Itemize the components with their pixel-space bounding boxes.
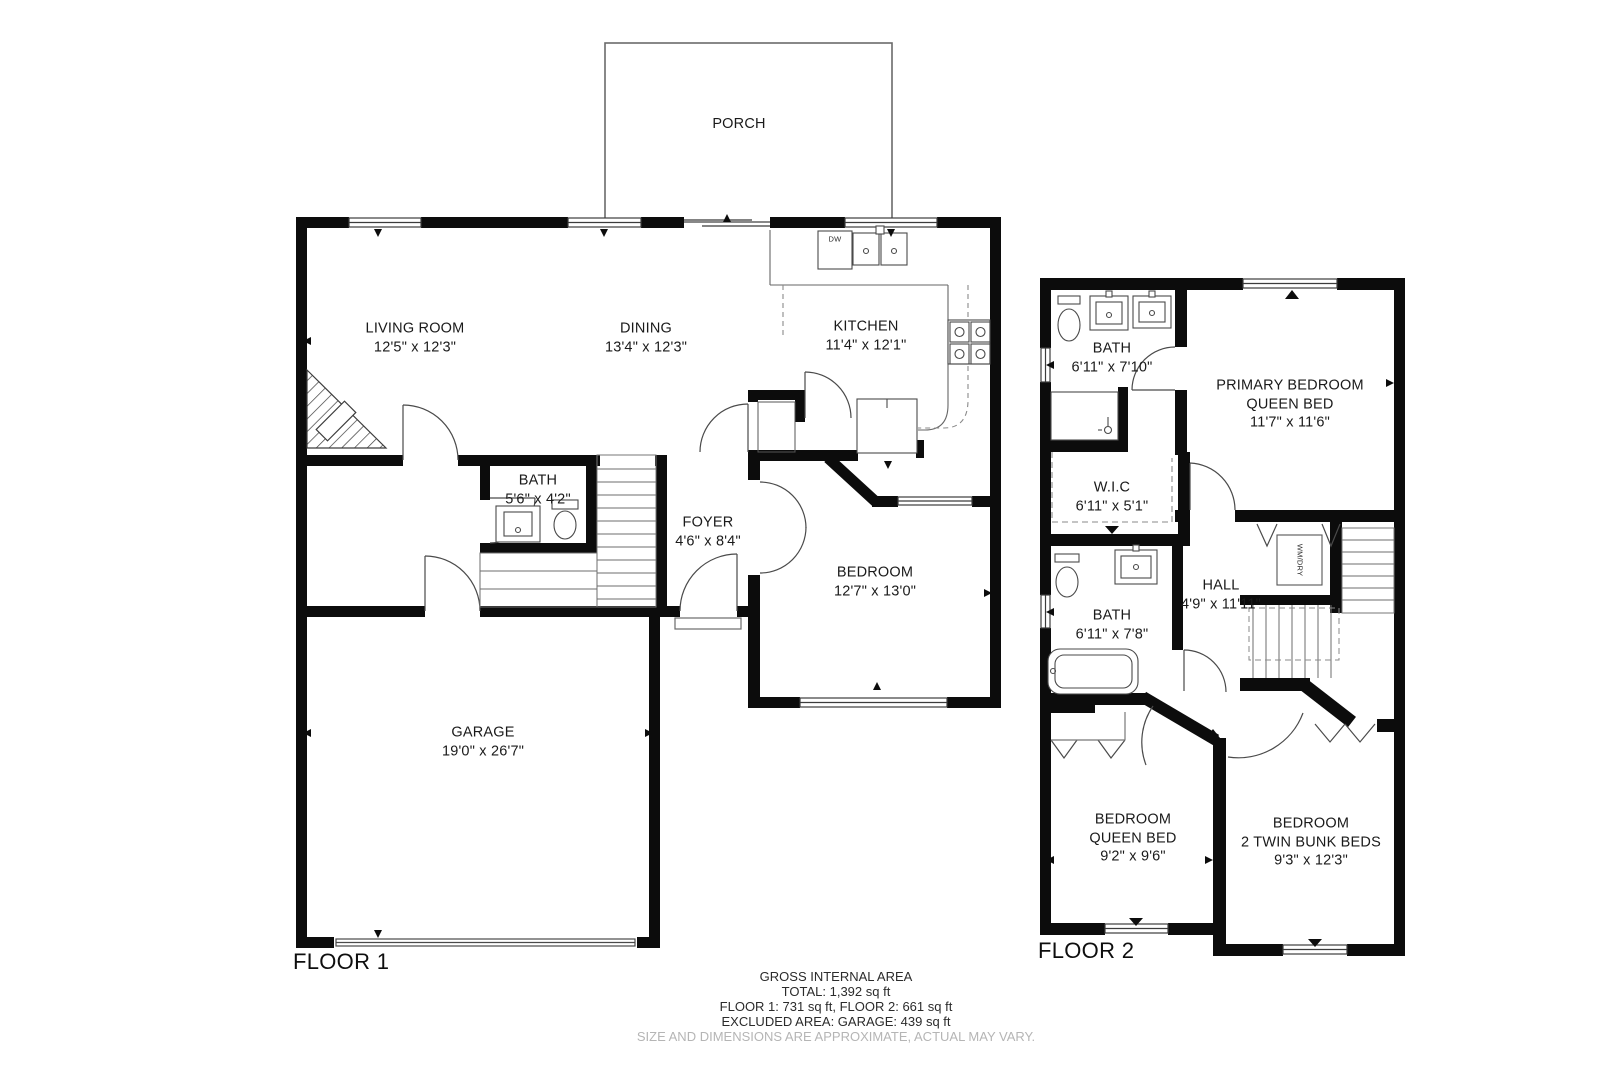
room-label-hall: HALL 4'9" x 11'11" [1181, 577, 1261, 614]
room-label-bedroom1: BEDROOM 12'7" x 13'0" [834, 564, 916, 601]
area-summary: GROSS INTERNAL AREA TOTAL: 1,392 sq ft F… [637, 970, 1035, 1045]
room-label-wic: W.I.C 6'11" x 5'1" [1076, 479, 1149, 516]
room-label-porch: PORCH [712, 115, 765, 134]
area-summary-heading: GROSS INTERNAL AREA [637, 970, 1035, 985]
floor1-tag: FLOOR 1 [293, 949, 389, 975]
room-label-kitchen: KITCHEN 11'4" x 12'1" [825, 318, 906, 355]
room-label-garage: GARAGE 19'0" x 26'7" [442, 724, 524, 761]
room-label-dining: DINING 13'4" x 12'3" [605, 320, 687, 357]
room-label-bath1: BATH 5'6" x 4'2" [505, 472, 571, 509]
washer-dryer-label: WM/DRY [1296, 544, 1305, 576]
room-label-living: LIVING ROOM 12'5" x 12'3" [366, 320, 465, 357]
dishwasher-label: DW [829, 235, 842, 244]
floor-plan-drawing [0, 0, 1599, 1066]
room-label-bath-top: BATH 6'11" x 7'10" [1071, 340, 1152, 377]
area-summary-total: TOTAL: 1,392 sq ft [637, 985, 1035, 1000]
area-summary-disclaimer: SIZE AND DIMENSIONS ARE APPROXIMATE, ACT… [637, 1030, 1035, 1045]
room-label-primary: PRIMARY BEDROOM QUEEN BED 11'7" x 11'6" [1216, 376, 1364, 432]
room-label-foyer: FOYER 4'6" x 8'4" [675, 514, 741, 551]
floor-plan: PORCH LIVING ROOM 12'5" x 12'3" DINING 1… [0, 0, 1599, 1066]
floor2-tag: FLOOR 2 [1038, 938, 1134, 964]
fireplace [307, 370, 386, 448]
room-label-bedroom-queen: BEDROOM QUEEN BED 9'2" x 9'6" [1089, 810, 1176, 866]
area-summary-excluded: EXCLUDED AREA: GARAGE: 439 sq ft [637, 1015, 1035, 1030]
room-label-bedroom-bunk: BEDROOM 2 TWIN BUNK BEDS 9'3" x 12'3" [1241, 814, 1381, 870]
floor1-diagonal-walls [828, 458, 876, 502]
room-label-bath-mid: BATH 6'11" x 7'8" [1076, 607, 1149, 644]
floor1-doors [403, 372, 851, 611]
area-summary-floors: FLOOR 1: 731 sq ft, FLOOR 2: 661 sq ft [637, 1000, 1035, 1015]
